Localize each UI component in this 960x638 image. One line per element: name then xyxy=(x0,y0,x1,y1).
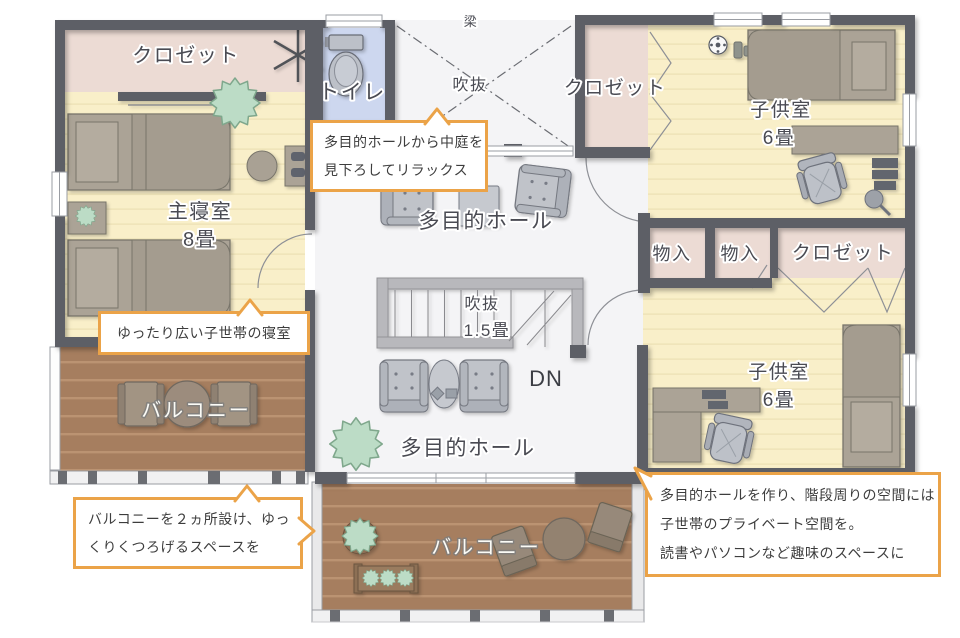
child2-size: 6畳 xyxy=(763,390,796,411)
callout-pointer-up xyxy=(234,484,260,502)
callout-balcony: バルコニーを２ヵ所設け、ゆっ くりくつろげるスペースを xyxy=(73,497,303,569)
beam-label: 梁 xyxy=(464,14,479,29)
child2-label: 子供室 xyxy=(748,361,810,383)
callout-text: 読書やパソコンなど趣味のスペースに xyxy=(660,539,926,568)
child-room1-entry-recess xyxy=(585,152,648,218)
armchair xyxy=(460,360,508,412)
storage2-label: 物入 xyxy=(721,244,760,264)
callout-pointer-up xyxy=(237,298,263,316)
railing xyxy=(312,482,322,618)
master-bedroom-label: 主寝室 xyxy=(168,200,233,223)
bed-master-2 xyxy=(68,240,230,316)
window xyxy=(903,94,916,146)
bed-master-1 xyxy=(68,114,230,190)
window xyxy=(326,15,382,27)
window xyxy=(714,13,762,26)
callout-hall-view: 多目的ホールから中庭を 見下ろしてリラックス xyxy=(310,120,488,192)
side-table xyxy=(429,360,459,408)
window xyxy=(903,354,916,406)
child1-size: 6畳 xyxy=(763,128,796,149)
master-bedroom-size: 8畳 xyxy=(183,229,217,251)
balcony-bottom-label: バルコニー xyxy=(431,537,541,559)
callout-text: 多目的ホールを作り、階段周りの空間には xyxy=(660,481,926,510)
child1-label: 子供室 xyxy=(750,99,812,121)
master-closet-label: クロゼット xyxy=(132,44,240,67)
bed-child1 xyxy=(748,30,895,100)
callout-pointer-right xyxy=(298,517,316,545)
round-stool xyxy=(247,151,277,181)
child1-closet-label: クロゼット xyxy=(564,77,667,99)
storage1-label: 物入 xyxy=(653,244,692,264)
stair-void-label: 吹抜 xyxy=(464,295,499,313)
callout-hall-private: 多目的ホールを作り、階段周りの空間には 子世帯のプライベート空間を。 読書やパソ… xyxy=(645,472,941,577)
bed-child2 xyxy=(843,325,900,467)
balcony-table xyxy=(543,518,585,560)
void-label: 吹抜 xyxy=(452,76,487,94)
callout-text: くりくつろげるスペースを xyxy=(88,533,288,561)
callout-text: 多目的ホールから中庭を xyxy=(324,128,474,156)
callout-bedroom: ゆったり広い子世帯の寝室 xyxy=(98,311,310,355)
sliding-window xyxy=(347,473,575,483)
callout-text: バルコニーを２ヵ所設け、ゆっ xyxy=(88,505,288,533)
child2-closet-label: クロゼット xyxy=(792,242,895,264)
balcony-left-label: バルコニー xyxy=(141,400,251,422)
callout-pointer-upleft xyxy=(632,467,652,501)
toilet-label: トイレ xyxy=(318,81,386,104)
railing xyxy=(632,482,644,618)
floor-plan-page: 梁 吹抜 クロゼット トイレ 主寝室 8畳 クロゼット 子供室 6畳 物入 物入… xyxy=(0,0,960,638)
callout-pointer-up xyxy=(424,107,450,125)
callout-text: 子世帯のプライベート空間を。 xyxy=(660,510,926,539)
armchair xyxy=(380,360,428,412)
window xyxy=(52,172,67,216)
hall-lower-label: 多目的ホール xyxy=(401,437,536,460)
callout-text: 見下ろしてリラックス xyxy=(324,156,474,184)
railing xyxy=(50,347,60,470)
callout-text: ゆったり広い子世帯の寝室 xyxy=(109,320,299,346)
stair-void-size: 1.5畳 xyxy=(464,321,511,340)
hall-upper-label: 多目的ホール xyxy=(419,210,554,233)
window xyxy=(782,13,830,26)
stairs-down-label: DN xyxy=(529,366,563,391)
